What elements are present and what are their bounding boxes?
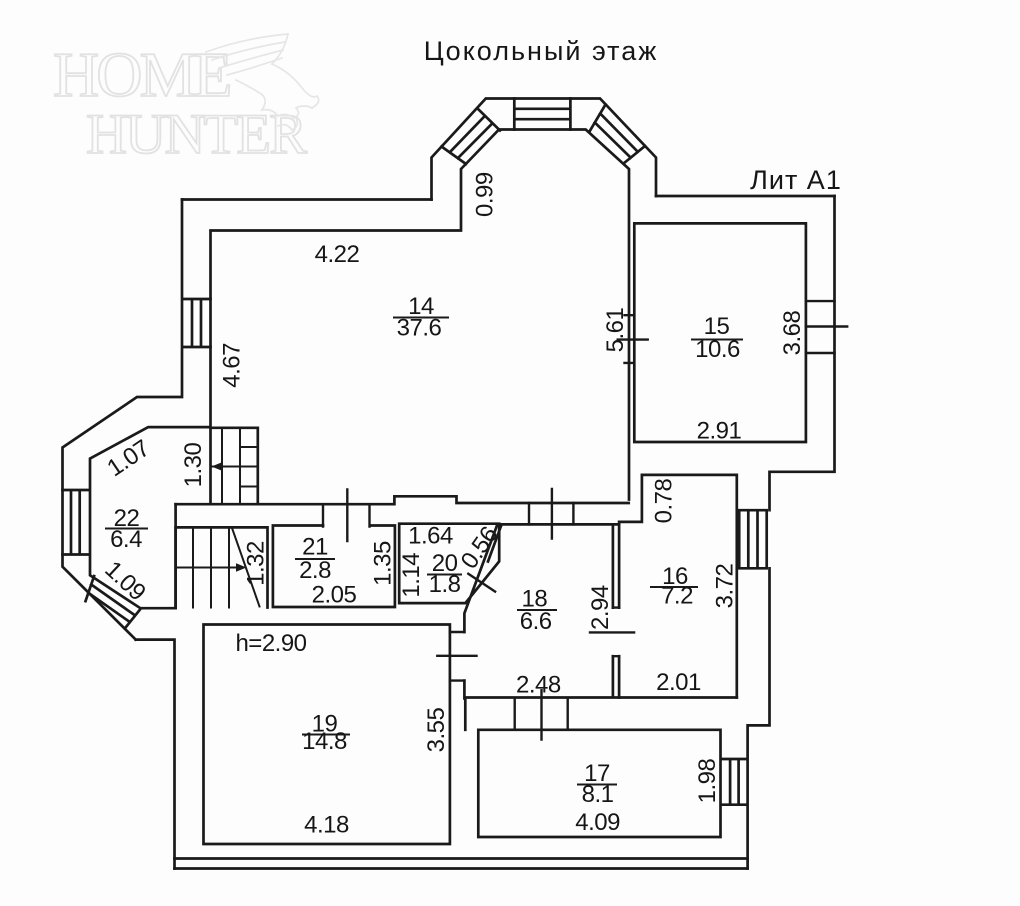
svg-text:2.05: 2.05 [312, 582, 357, 609]
svg-text:1.98: 1.98 [694, 758, 721, 803]
svg-text:37.6: 37.6 [397, 315, 442, 342]
svg-text:6.6: 6.6 [520, 608, 552, 635]
svg-text:3.68: 3.68 [779, 310, 806, 355]
svg-text:HOME: HOME [53, 39, 229, 110]
svg-text:2.91: 2.91 [697, 418, 742, 445]
svg-text:1.30: 1.30 [180, 442, 207, 487]
svg-text:1.64: 1.64 [408, 523, 453, 550]
svg-text:2.01: 2.01 [656, 669, 701, 696]
svg-text:14.8: 14.8 [302, 728, 347, 755]
svg-text:3.55: 3.55 [423, 707, 450, 752]
svg-text:6.4: 6.4 [110, 526, 142, 553]
svg-text:1.14: 1.14 [398, 553, 425, 598]
svg-text:1.07: 1.07 [102, 435, 154, 482]
svg-text:2.94: 2.94 [587, 585, 614, 630]
svg-text:4.22: 4.22 [315, 241, 360, 268]
svg-text:Цокольный этаж: Цокольный этаж [424, 36, 659, 66]
svg-text:5.61: 5.61 [602, 307, 629, 352]
svg-text:4.09: 4.09 [575, 809, 620, 836]
svg-text:0.99: 0.99 [472, 172, 499, 217]
svg-text:2.48: 2.48 [516, 672, 561, 699]
svg-text:h=2.90: h=2.90 [235, 630, 306, 657]
svg-text:1.09: 1.09 [99, 556, 150, 606]
svg-text:4.67: 4.67 [219, 343, 246, 388]
svg-text:0.78: 0.78 [651, 478, 678, 523]
svg-text:4.18: 4.18 [304, 812, 349, 839]
svg-text:10.6: 10.6 [695, 336, 740, 363]
svg-text:7.2: 7.2 [661, 583, 693, 610]
svg-text:Лит А1: Лит А1 [750, 165, 842, 195]
svg-text:3.72: 3.72 [712, 563, 739, 608]
svg-text:1.35: 1.35 [370, 541, 397, 586]
svg-text:1.8: 1.8 [429, 571, 461, 598]
svg-text:1.32: 1.32 [243, 541, 270, 586]
svg-text:8.1: 8.1 [582, 781, 614, 808]
svg-text:2.8: 2.8 [299, 557, 331, 584]
